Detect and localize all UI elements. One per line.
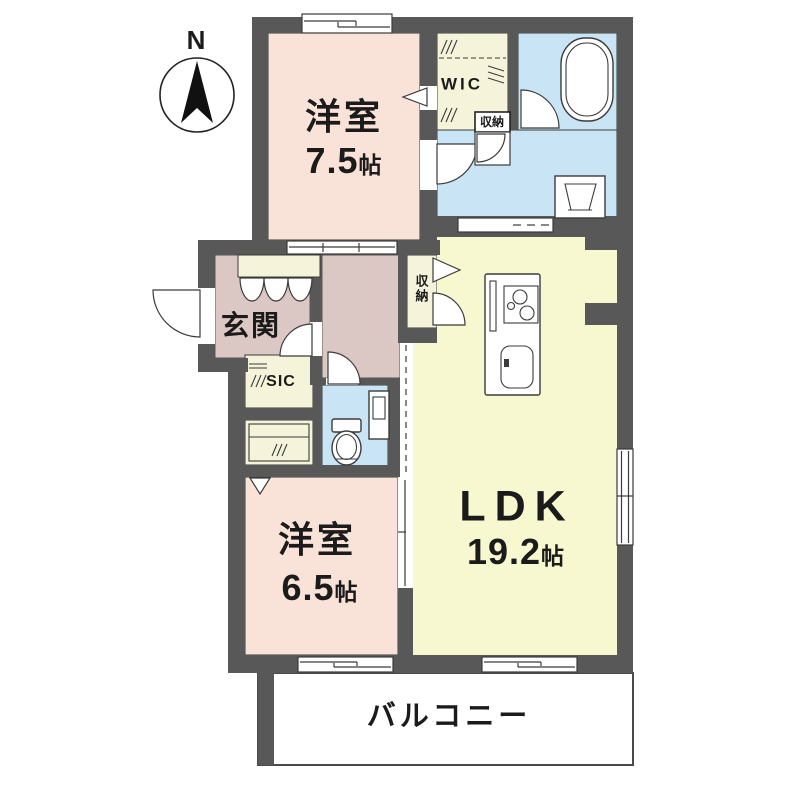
window-balcony-1-icon bbox=[298, 657, 393, 672]
window-right-icon bbox=[617, 449, 633, 545]
hall-ldk-passage bbox=[400, 343, 413, 477]
ldk-name: LDK bbox=[459, 486, 574, 529]
bedroom2-size-unit: 帖 bbox=[335, 579, 359, 605]
counter-window-icon bbox=[458, 218, 553, 232]
toilet-cabinet-icon bbox=[369, 391, 389, 439]
hall-storage-label: 収納 bbox=[415, 274, 428, 304]
north-label: N bbox=[187, 27, 206, 53]
room-closet bbox=[245, 420, 313, 465]
wall-left-upper bbox=[252, 17, 268, 255]
window-top-icon bbox=[302, 14, 392, 33]
wall-bedroom2-ldk-lower bbox=[398, 588, 413, 655]
compass bbox=[160, 58, 234, 132]
room-ldk-left bbox=[413, 343, 439, 655]
sliding-door-bedroom1-icon bbox=[287, 241, 397, 254]
room-bedroom-6_5 bbox=[245, 477, 398, 655]
wall-toilet-right bbox=[388, 378, 400, 477]
wic-label: WIC bbox=[441, 76, 483, 93]
bedroom1-name: 洋室 bbox=[305, 99, 383, 135]
wall-bedroom1-right bbox=[420, 17, 437, 240]
window-balcony-2-icon bbox=[482, 657, 577, 672]
bedroom2-size: 6.5帖 bbox=[281, 570, 358, 606]
balcony-label: バルコニー bbox=[367, 703, 531, 732]
wall-bedroom2-top bbox=[245, 465, 413, 477]
sink-icon bbox=[555, 176, 605, 218]
wall-below-sic bbox=[245, 408, 313, 420]
ldk-size-unit: 帖 bbox=[541, 543, 565, 569]
wall-pillar-1 bbox=[585, 216, 617, 250]
bedroom2-size-value: 6.5 bbox=[281, 567, 334, 608]
sliding-door-bedroom2-icon bbox=[398, 477, 413, 588]
bedroom2-name: 洋室 bbox=[278, 522, 356, 558]
kitchen-icon bbox=[485, 274, 540, 395]
bathtub-icon bbox=[561, 38, 613, 121]
wall-pillar-2 bbox=[585, 303, 617, 325]
toilet-icon bbox=[332, 419, 361, 465]
ldk-size-value: 19.2 bbox=[467, 531, 541, 572]
sic-label: SIC bbox=[266, 374, 296, 390]
entrance-door-arc-icon bbox=[153, 290, 200, 337]
wall-right bbox=[617, 17, 633, 673]
wall-balcony-left bbox=[258, 673, 274, 765]
wall-toilet-left bbox=[313, 378, 322, 467]
wic-storage-label: 収納 bbox=[480, 116, 504, 128]
wall-hallstorage-bottom bbox=[398, 328, 437, 343]
entrance-label: 玄関 bbox=[221, 312, 281, 340]
faucet-icon bbox=[504, 359, 509, 367]
bedroom1-size-unit: 帖 bbox=[359, 152, 383, 178]
bedroom1-size: 7.5帖 bbox=[305, 143, 382, 179]
floorplan-canvas: N 洋室 7.5帖 WIC 収納 玄関 収納 SIC 洋室 6.5帖 LDK 1… bbox=[0, 0, 800, 800]
floorplan-drawing bbox=[0, 0, 800, 800]
entry-closet-icon bbox=[238, 255, 320, 301]
washroom-opening bbox=[420, 140, 437, 190]
bedroom1-size-value: 7.5 bbox=[305, 140, 358, 181]
wall-left-lower bbox=[228, 368, 245, 658]
ldk-size: 19.2帖 bbox=[467, 534, 565, 570]
wall-hall-right bbox=[398, 255, 407, 328]
